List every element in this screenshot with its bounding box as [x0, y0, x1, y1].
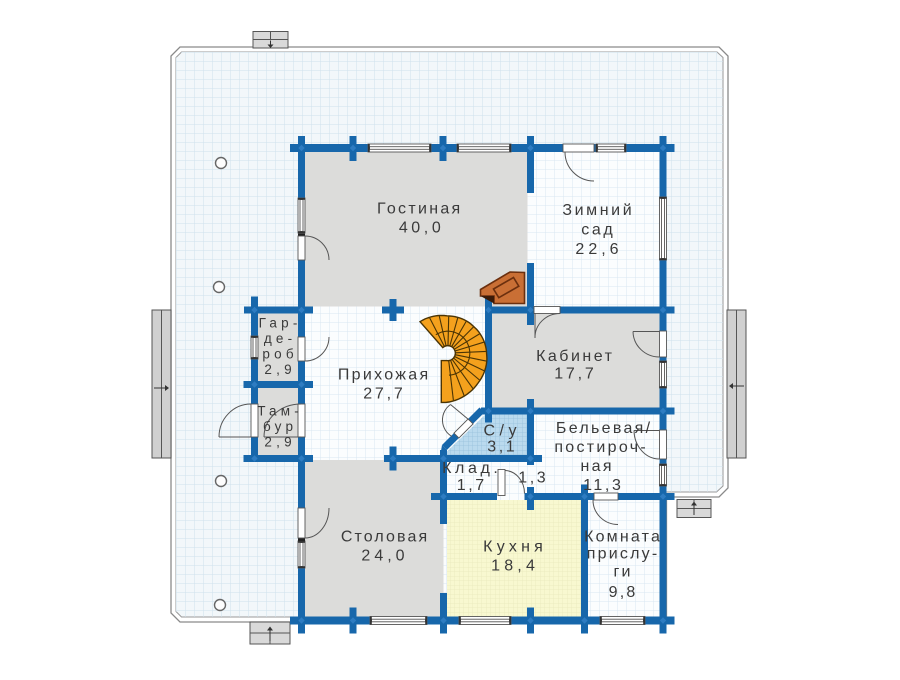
svg-text:3,1: 3,1 — [487, 439, 517, 456]
svg-text:11,3: 11,3 — [583, 477, 623, 494]
svg-text:Зимний: Зимний — [562, 202, 634, 219]
svg-text:18,4: 18,4 — [491, 558, 539, 575]
svg-text:Столовая: Столовая — [341, 529, 429, 546]
svg-text:1,7: 1,7 — [457, 477, 487, 494]
svg-text:24,0: 24,0 — [361, 548, 408, 565]
svg-text:С/у: С/у — [484, 423, 522, 440]
svg-text:1,3: 1,3 — [518, 470, 548, 487]
svg-text:27,7: 27,7 — [363, 386, 405, 403]
svg-text:роб: роб — [262, 347, 297, 362]
svg-text:сад: сад — [581, 222, 615, 239]
svg-text:Кабинет: Кабинет — [536, 348, 614, 365]
svg-text:прислу-: прислу- — [587, 546, 660, 563]
svg-text:Прихожая: Прихожая — [338, 367, 431, 384]
svg-text:2,9: 2,9 — [264, 435, 295, 450]
svg-text:Бельевая/: Бельевая/ — [556, 420, 652, 437]
svg-text:Гостиная: Гостиная — [377, 201, 463, 218]
svg-text:бур: бур — [263, 419, 297, 434]
svg-text:ная: ная — [580, 458, 613, 475]
svg-text:Кухня: Кухня — [483, 539, 547, 556]
svg-text:Клад.: Клад. — [442, 460, 501, 477]
svg-text:Там-: Там- — [257, 404, 303, 419]
svg-text:Гар-: Гар- — [259, 316, 302, 331]
svg-text:22,6: 22,6 — [575, 241, 622, 258]
svg-text:17,7: 17,7 — [554, 366, 596, 383]
svg-text:40,0: 40,0 — [399, 220, 445, 237]
svg-text:Комната: Комната — [584, 529, 662, 546]
svg-text:постироч-: постироч- — [554, 439, 648, 456]
svg-text:ги: ги — [614, 564, 633, 581]
svg-text:9,8: 9,8 — [609, 584, 638, 601]
svg-text:2,9: 2,9 — [264, 362, 295, 377]
svg-text:де-: де- — [264, 331, 296, 346]
